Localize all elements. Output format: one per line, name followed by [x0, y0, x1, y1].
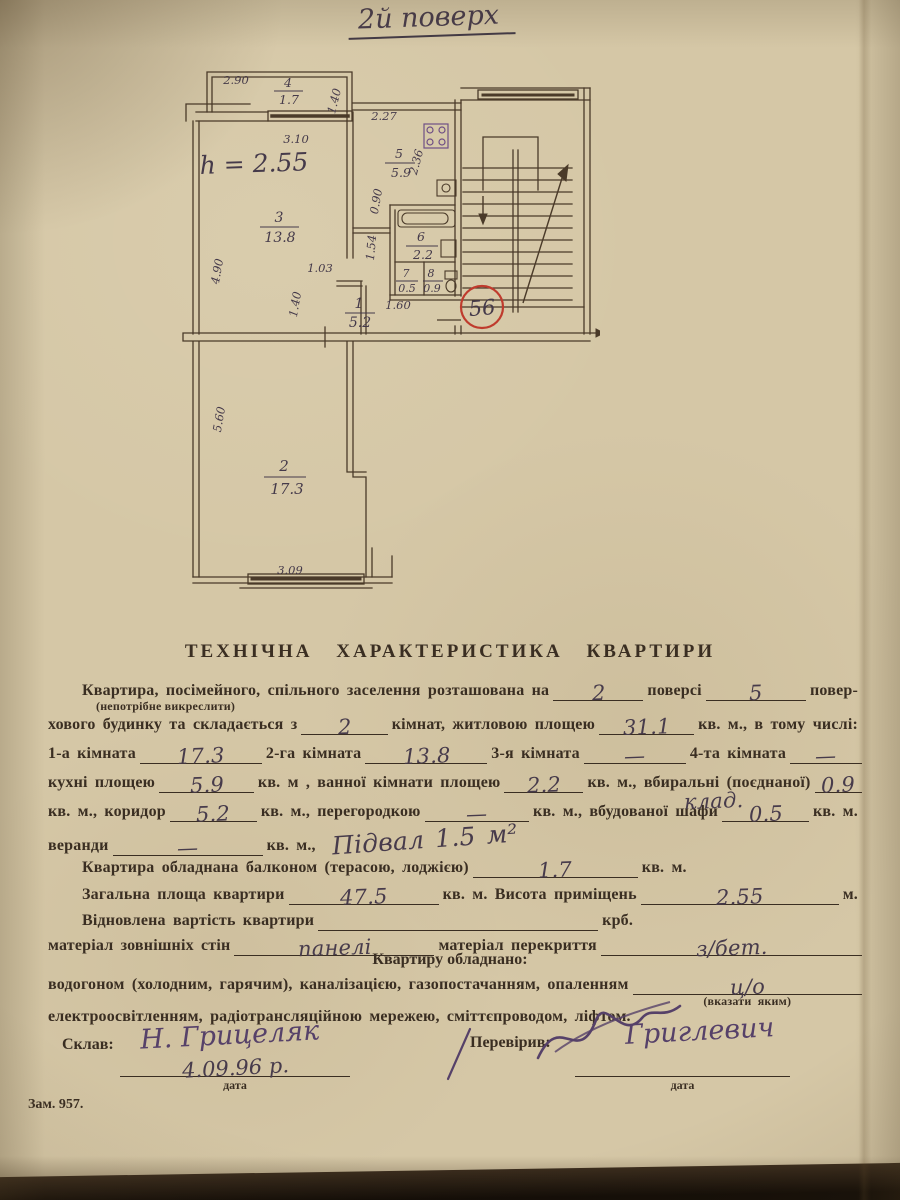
dim-1-54: 1.54 [363, 234, 379, 261]
room-8-num: 8 [428, 267, 435, 280]
checked-date-line [575, 1050, 790, 1077]
wardrobe-area-field: клад. 0.5 [722, 799, 809, 822]
ceiling-height-note: h = 2.55 [199, 147, 309, 180]
specify-note: (вказати яким) [633, 994, 862, 1009]
room-3-area: 13.8 [264, 230, 295, 246]
height-field: 2.55 [641, 882, 839, 905]
room-balcony-area: 1.7 [279, 92, 299, 107]
form-line-7: Квартира обладнана балконом (терасою, ло… [48, 855, 862, 878]
restored-value-field [318, 908, 598, 931]
restored-value-label: Відновлена вартість квартири [82, 912, 318, 931]
plan-arrows [479, 165, 600, 337]
room-5-area: 5.9 [391, 165, 411, 180]
line1-text2: поверсі [643, 682, 705, 701]
apartment-number-stamp: 56 [437, 286, 503, 328]
corridor-area-field: 5.2 [170, 799, 257, 822]
room2-label: 2-га кімната [262, 745, 365, 764]
sqm-label3: кв. м. [638, 859, 691, 878]
bath-label: кв. м , ванної кімнати площею [254, 774, 505, 793]
checked-by-label: Перевірив: [470, 1034, 551, 1052]
date-label: дата [120, 1078, 350, 1093]
equipped-heading: Квартиру обладнано: [0, 951, 900, 969]
room3-area-field: — [584, 741, 686, 764]
room-6-area: 2.2 [412, 247, 433, 262]
form-line-2: хового будинку та складається з 2 кімнат… [48, 712, 862, 735]
dim-3-09: 3.09 [277, 563, 303, 577]
dim-5-60: 5.60 [210, 405, 228, 433]
made-date-block: 4.09.96 р. дата [120, 1050, 350, 1093]
form-title: ТЕХНІЧНА ХАРАКТЕРИСТИКА КВАРТИРИ [0, 641, 900, 663]
form-line-5: кв. м., коридор 5.2 кв. м., перегородкою… [48, 799, 862, 822]
room1-area-field: 17.3 [140, 741, 262, 764]
form-line-6: веранди — кв. м., Підвал 1.5 м² [48, 827, 862, 856]
bath-area-field: 2.2 [504, 770, 583, 793]
checked-by-signature: Григлевич [624, 1012, 775, 1051]
dim-1-60: 1.60 [385, 298, 411, 312]
line2-text2: кімнат, житловою площею [388, 716, 599, 735]
room-6-num: 6 [417, 229, 425, 244]
room2-area-field: 13.8 [365, 741, 487, 764]
floor-field: 2 [553, 678, 643, 701]
room3-label: 3-я кімната [487, 745, 584, 764]
dim-1-03: 1.03 [307, 261, 333, 275]
partition-label: кв. м., перегородкою [257, 803, 425, 822]
klad-note: клад. [684, 788, 744, 814]
made-date-line: 4.09.96 р. [120, 1050, 350, 1077]
room-1-num: 1 [355, 296, 364, 312]
room4-area-field: — [790, 741, 862, 764]
electric-label: електроосвітленням, радіотрансляційною м… [48, 1008, 635, 1027]
form-line-3: 1-а кімната 17.3 2-га кімната 13.8 3-я к… [48, 741, 862, 764]
total-area-field: 47.5 [289, 882, 439, 905]
dim-0-90: 0.90 [367, 187, 385, 215]
corridor-label: кв. м., коридор [48, 803, 170, 822]
room-2-area: 17.3 [270, 480, 303, 498]
form-line-1: Квартира, посімейного, спільного заселен… [48, 678, 862, 701]
room-3-num: 3 [275, 210, 284, 226]
living-area-field: 31.1 [599, 712, 694, 735]
room1-label: 1-а кімната [48, 745, 140, 764]
utilities-label: водогоном (холодним, гарячим), каналізац… [48, 976, 633, 995]
balcony-area-field: 1.7 [473, 855, 638, 878]
form-line-8: Загальна площа квартири 47.5 кв. м. Висо… [48, 882, 862, 905]
room-5-num: 5 [395, 146, 403, 161]
storeys-field: 5 [706, 678, 806, 701]
balcony-label: Квартира обладнана балконом (терасою, ло… [82, 859, 473, 878]
form-line-9: Відновлена вартість квартири крб. [48, 908, 862, 931]
room-8-area: 0.9 [423, 282, 441, 295]
kitchen-area-field: 5.9 [159, 770, 254, 793]
checked-date-block: дата [575, 1050, 790, 1093]
sqm-label: кв. м. [809, 803, 862, 822]
date-label2: дата [575, 1078, 790, 1093]
dim-1-40-corridor: 1.40 [286, 290, 304, 318]
order-number: Зам. 957. [28, 1097, 83, 1113]
form-line-12: водогоном (холодним, гарячим), каналізац… [48, 972, 862, 995]
dim-2-90: 2.90 [222, 73, 249, 87]
apartment-number: 56 [468, 295, 497, 321]
room-7-area: 0.5 [398, 282, 416, 295]
room-balcony-num: 4 [283, 75, 292, 90]
room4-label: 4-та кімната [686, 745, 790, 764]
room-1-area: 5.2 [349, 315, 371, 331]
dim-4-90: 4.90 [208, 257, 226, 286]
kitchen-sink-icon [437, 180, 456, 196]
dim-2-27: 2.27 [370, 109, 397, 123]
krb-label: крб. [598, 912, 637, 931]
m-label: м. [839, 886, 862, 905]
veranda-label: веранди [48, 837, 113, 856]
line2-text3: кв. м., в тому числі: [694, 716, 862, 735]
total-area-label: Загальна площа квартири [82, 886, 289, 905]
height-label: кв. м. Висота приміщень [439, 886, 641, 905]
room-7-num: 7 [403, 267, 410, 280]
floor-plan: 2.90 1.40 3.10 2.27 4.90 2.36 0.90 1.54 … [175, 58, 600, 603]
wc-area-field: 0.9 [815, 770, 862, 793]
bath-sink-icon [441, 240, 456, 257]
dim-3-10: 3.10 [283, 132, 309, 146]
veranda-area-field: — [113, 833, 263, 856]
floor-note: 2й поверх [347, 0, 515, 40]
room-2-num: 2 [278, 457, 289, 475]
kitchen-label: кухні площею [48, 774, 159, 793]
rooms-count-field: 2 [301, 712, 387, 735]
stove-icon [424, 124, 448, 148]
line2-text: хового будинку та складається з [48, 716, 301, 735]
line1-text3: повер- [806, 682, 862, 701]
made-by-label: Склав: [62, 1036, 114, 1054]
scanned-document: 2й поверх [0, 0, 900, 1200]
heating-type-field: ц/о (вказати яким) [633, 972, 862, 995]
sqm-label2: кв. м., [263, 837, 320, 856]
